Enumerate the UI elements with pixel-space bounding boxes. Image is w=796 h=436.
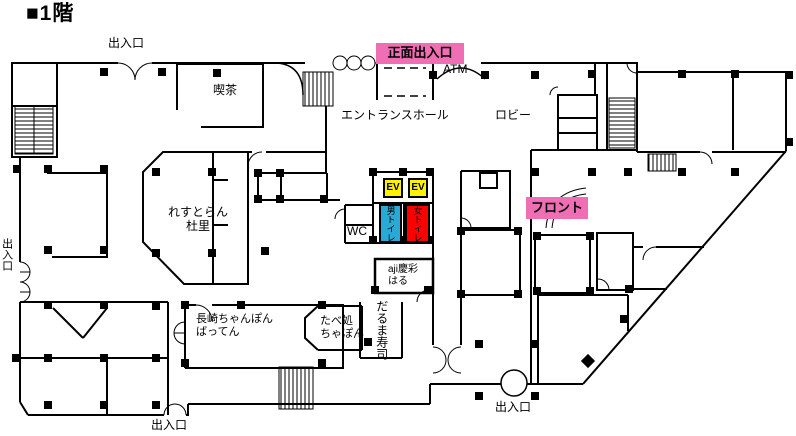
tabedokoro-label: たべ処 ちゃぽん <box>320 315 364 340</box>
main-entrance-label: 正面出入口 <box>376 43 464 64</box>
entrance-hall-label: エントランスホール <box>341 109 449 123</box>
cafe-label: 喫茶 <box>213 84 237 98</box>
exit-label-top: 出入口 <box>108 37 144 51</box>
exit-label-bottom: 出入口 <box>151 419 187 433</box>
exit-label-left: 出入口 <box>0 238 13 271</box>
mens-toilet: 男トイレ <box>379 204 402 243</box>
atm-label: ATM <box>443 63 467 77</box>
page-title: ■1階 <box>26 2 74 26</box>
floor-map-page: ■1階 出入口 正面出入口 ATM エントランスホール ロビー 喫茶 れすとらん… <box>0 0 796 436</box>
elevator-2: EV <box>408 178 428 198</box>
wc-label: WC <box>347 225 367 239</box>
exit-label-bottom-right: 出入口 <box>495 401 531 415</box>
nagasaki-champon-label: 長崎ちゃんぽん ばってん <box>196 313 273 338</box>
daruma-sushi-label: だるま寿司 <box>374 300 388 362</box>
elevator-1: EV <box>383 178 403 198</box>
womens-toilet: 女トイレ <box>405 204 430 243</box>
aji-label: aji慶彩 はる <box>388 264 418 287</box>
front-desk-label: フロント <box>526 197 588 219</box>
lobby-label: ロビー <box>495 109 531 123</box>
restaurant-label: れすとらん 杜里 <box>160 206 236 234</box>
